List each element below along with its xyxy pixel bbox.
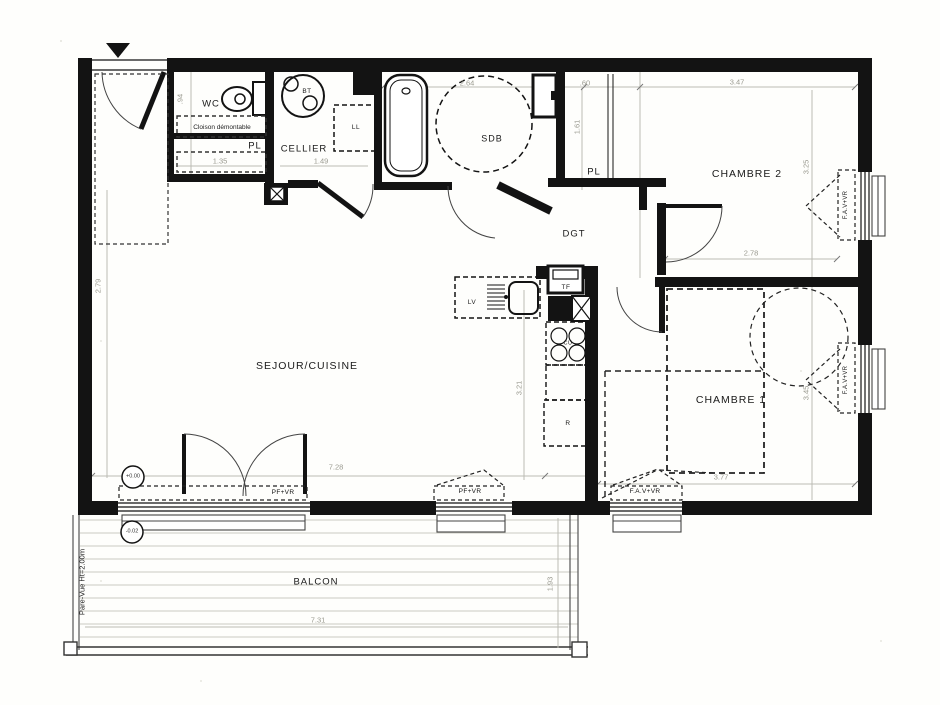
window-symbols <box>119 170 855 500</box>
bedroom1-furniture <box>602 288 848 500</box>
entrance-arrow <box>106 43 130 58</box>
floor-plan: SEJOUR/CUISINECHAMBRE 2CHAMBRE 1SDBDGTCE… <box>0 0 940 705</box>
floor-plan-drawing <box>0 0 940 705</box>
interior-walls <box>167 58 860 501</box>
kitchen-fixtures <box>455 266 591 446</box>
window-sills <box>122 176 885 532</box>
bathroom-fixtures <box>385 75 560 176</box>
wc-fixtures <box>222 82 266 115</box>
level-markers <box>121 466 144 543</box>
dimension-lines <box>85 62 858 648</box>
